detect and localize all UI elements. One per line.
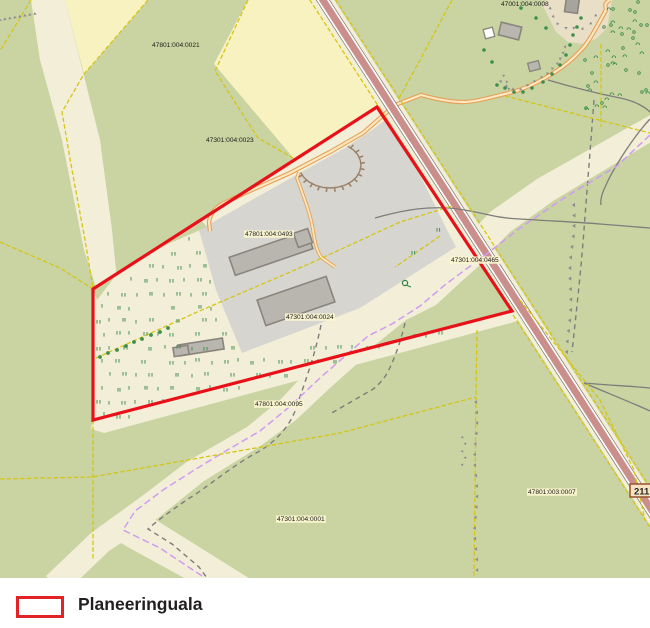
svg-text:47301:004:0024: 47301:004:0024: [286, 314, 334, 321]
svg-text:211: 211: [634, 487, 650, 498]
svg-text:47301:004:0023: 47301:004:0023: [206, 137, 254, 144]
svg-text:47801:004:0493: 47801:004:0493: [245, 231, 293, 238]
svg-text:47001:004:0008: 47001:004:0008: [501, 1, 549, 8]
svg-text:47801:003:0007: 47801:003:0007: [528, 489, 576, 496]
svg-text:47801:004:0021: 47801:004:0021: [152, 42, 200, 49]
svg-text:47801:004:0095: 47801:004:0095: [255, 401, 303, 408]
svg-text:47301:004:0001: 47301:004:0001: [277, 516, 325, 523]
svg-text:47301:004:0465: 47301:004:0465: [451, 257, 499, 264]
